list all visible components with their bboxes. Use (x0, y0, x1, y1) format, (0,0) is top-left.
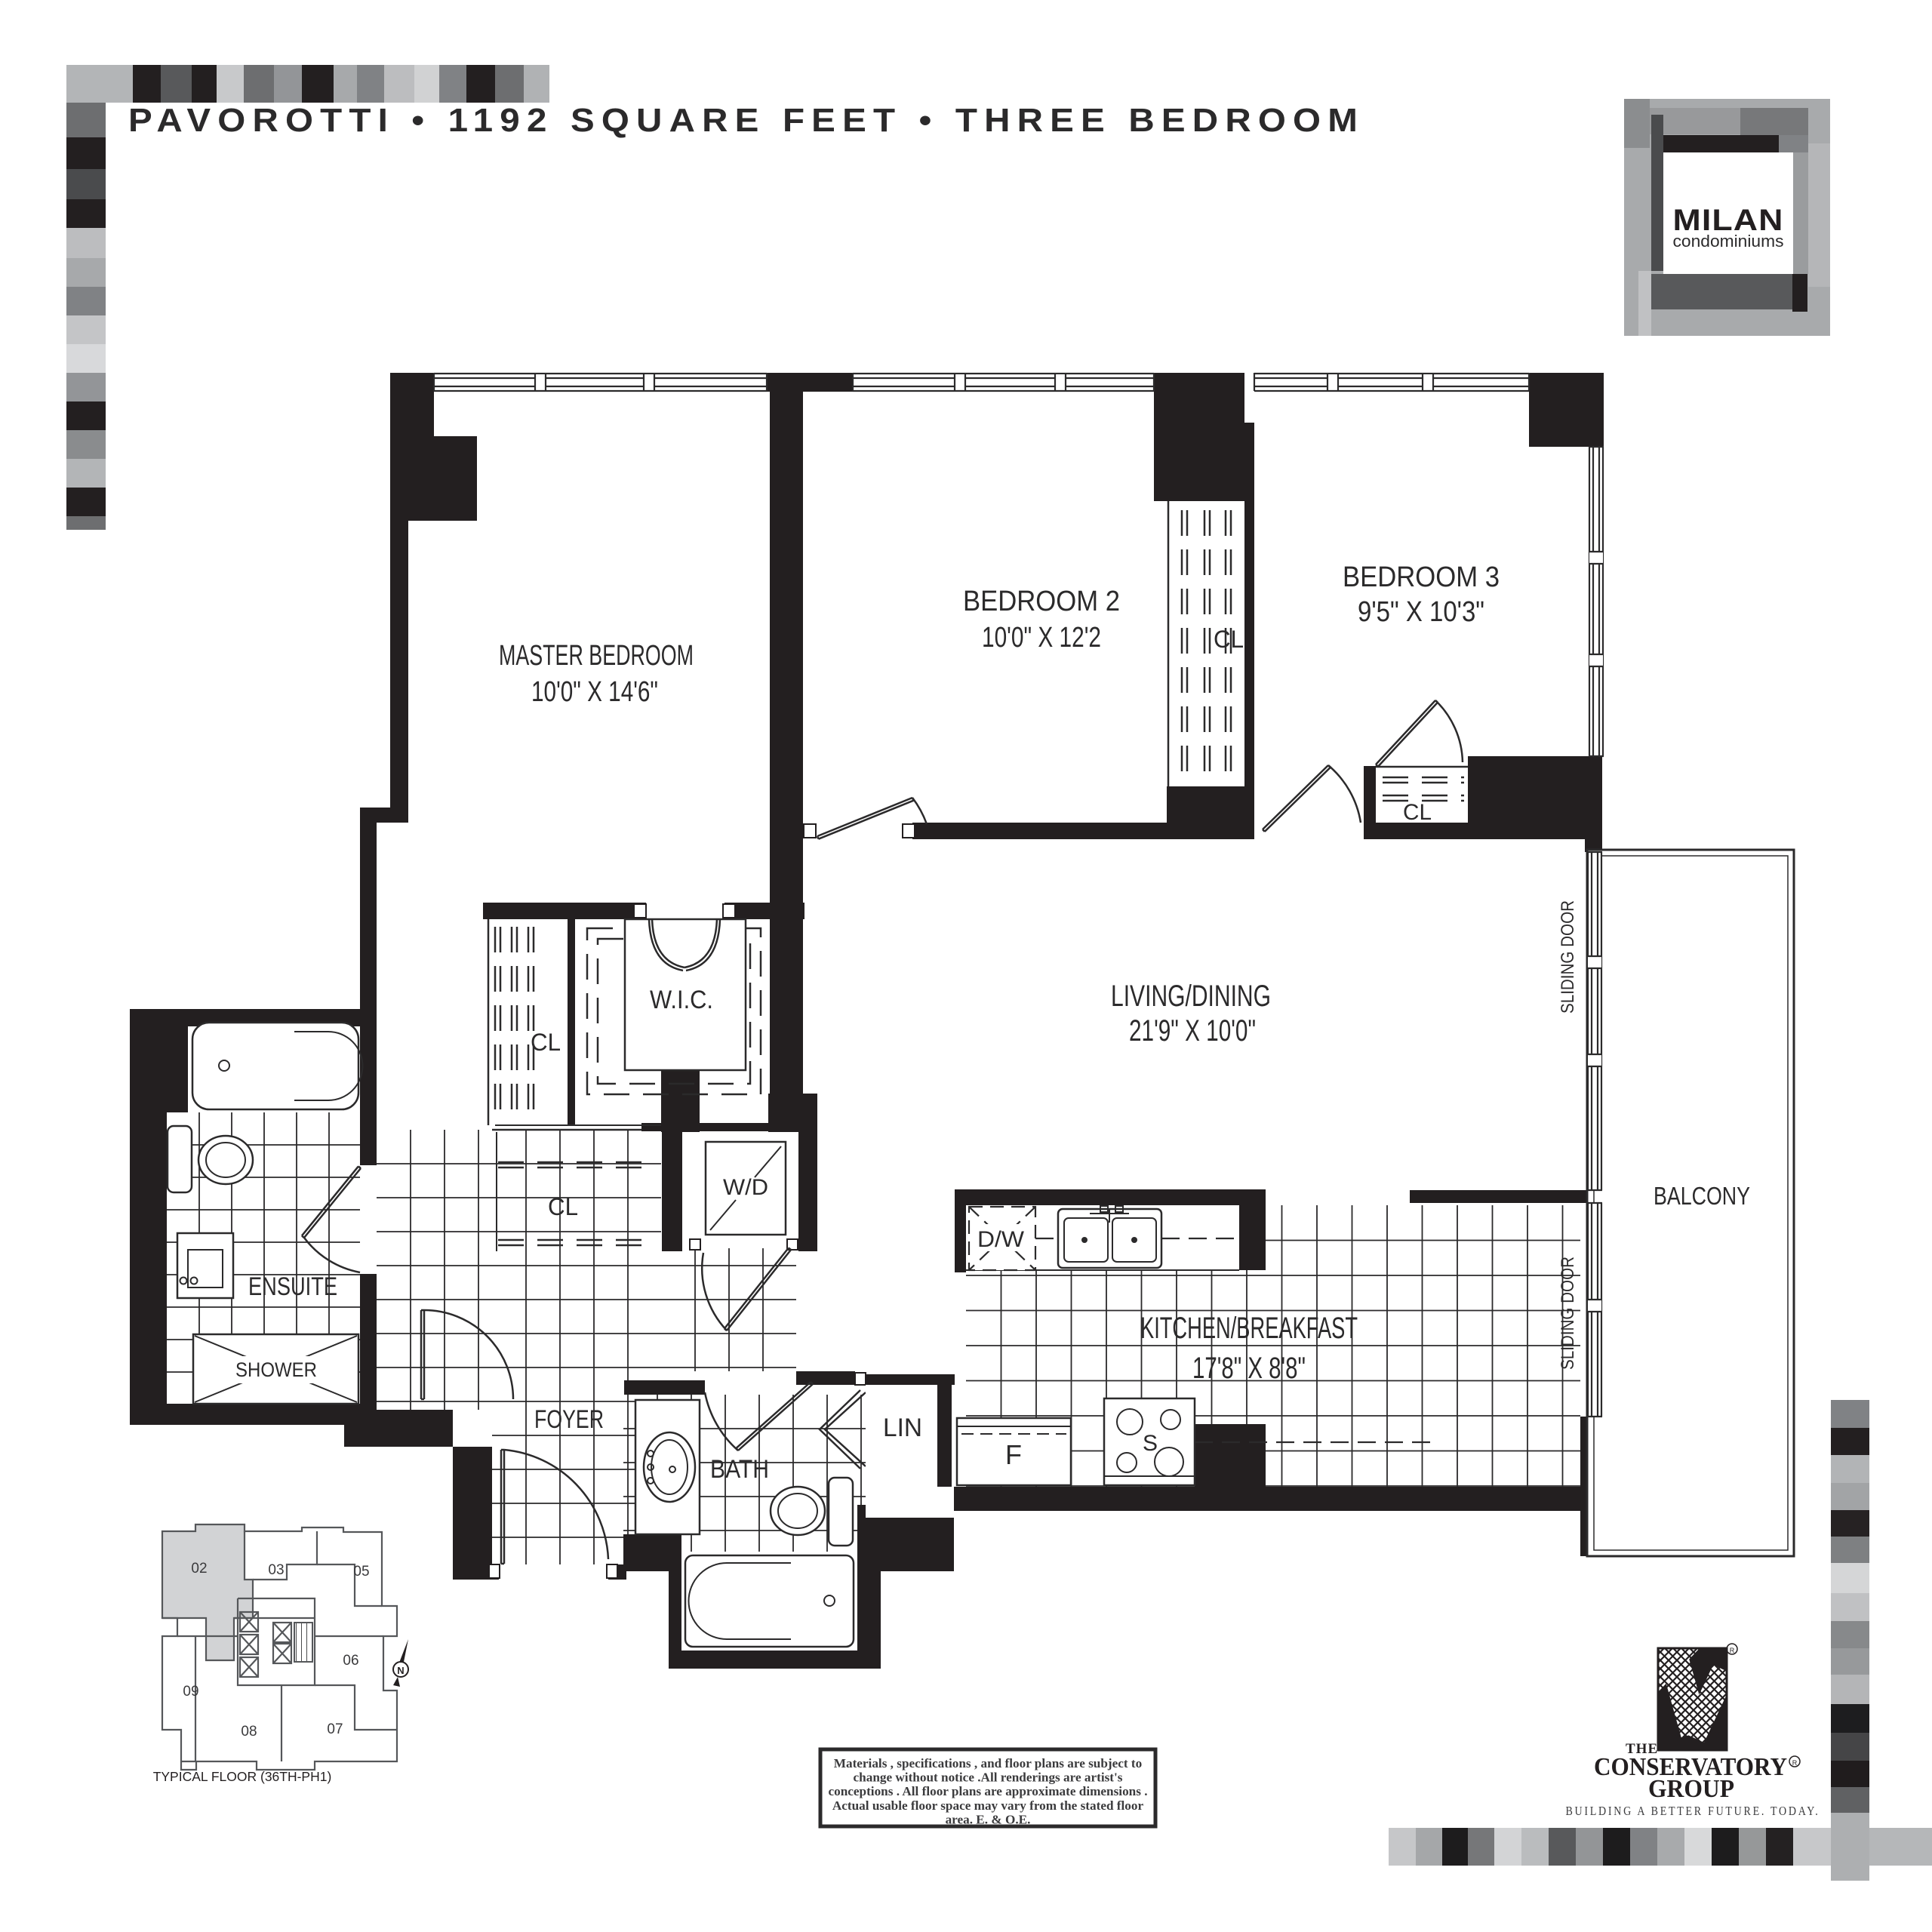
svg-text:W/D: W/D (723, 1175, 768, 1200)
svg-text:LIVING/DINING: LIVING/DINING (1111, 980, 1271, 1013)
svg-text:D/W: D/W (977, 1227, 1025, 1252)
svg-text:SLIDING DOOR: SLIDING DOOR (1558, 1257, 1578, 1370)
svg-text:BEDROOM 2: BEDROOM 2 (963, 586, 1120, 617)
svg-text:17'8" X 8'8": 17'8" X 8'8" (1192, 1352, 1306, 1385)
svg-text:TYPICAL FLOOR (36TH-PH1): TYPICAL FLOOR (36TH-PH1) (153, 1769, 332, 1784)
svg-text:change without notice .All re: change without notice .All renderings ar… (854, 1770, 1123, 1785)
svg-text:MASTER BEDROOM: MASTER BEDROOM (499, 640, 694, 672)
svg-text:BALCONY: BALCONY (1654, 1182, 1750, 1210)
svg-text:07: 07 (327, 1721, 343, 1737)
svg-text:R: R (1792, 1759, 1798, 1767)
svg-text:SHOWER: SHOWER (235, 1358, 317, 1381)
svg-text:ENSUITE: ENSUITE (248, 1272, 337, 1301)
svg-text:06: 06 (343, 1653, 358, 1669)
svg-text:SLIDING DOOR: SLIDING DOOR (1558, 900, 1578, 1014)
svg-text:PAVOROTTI • 1192 SQUARE FEET •: PAVOROTTI • 1192 SQUARE FEET • THREE BED… (128, 102, 1364, 139)
svg-text:9'5" X 10'3": 9'5" X 10'3" (1358, 596, 1484, 628)
svg-text:area. E. & O.E.: area. E. & O.E. (946, 1812, 1031, 1826)
svg-text:CL: CL (1403, 800, 1432, 825)
svg-text:03: 03 (268, 1562, 284, 1578)
svg-text:condominiums: condominiums (1673, 232, 1784, 251)
svg-text:R: R (1730, 1647, 1735, 1654)
svg-text:21'9" X 10'0": 21'9" X 10'0" (1129, 1014, 1256, 1048)
svg-text:02: 02 (191, 1561, 207, 1577)
svg-text:BEDROOM 3: BEDROOM 3 (1343, 561, 1500, 593)
svg-text:BATH: BATH (710, 1455, 769, 1484)
svg-text:conceptions . All floor plans: conceptions . All floor plans are approx… (828, 1784, 1147, 1798)
svg-text:Actual usable floor space may: Actual usable floor space may vary from … (832, 1798, 1144, 1813)
svg-text:09: 09 (183, 1684, 198, 1700)
svg-text:05: 05 (353, 1564, 369, 1580)
svg-text:10'0" X 14'6": 10'0" X 14'6" (531, 676, 658, 708)
svg-text:KITCHEN/BREAKFAST: KITCHEN/BREAKFAST (1140, 1312, 1358, 1345)
svg-text:S: S (1143, 1431, 1158, 1456)
svg-text:CL: CL (1214, 626, 1244, 653)
svg-text:BUILDING A BETTER FUTURE. TODA: BUILDING A BETTER FUTURE. TODAY. (1566, 1804, 1820, 1818)
svg-text:Materials , specifications ,: Materials , specifications , and floor p… (834, 1756, 1143, 1770)
svg-text:LIN: LIN (883, 1414, 922, 1442)
svg-text:F: F (1005, 1439, 1022, 1470)
svg-text:GROUP: GROUP (1648, 1775, 1734, 1803)
svg-text:FOYER: FOYER (534, 1405, 604, 1434)
svg-text:08: 08 (241, 1724, 257, 1740)
svg-text:CL: CL (531, 1029, 561, 1056)
svg-text:N: N (397, 1665, 404, 1676)
svg-text:CL: CL (548, 1193, 578, 1220)
svg-text:10'0" X 12'2: 10'0" X 12'2 (982, 622, 1101, 654)
svg-text:W.I.C.: W.I.C. (650, 986, 713, 1014)
